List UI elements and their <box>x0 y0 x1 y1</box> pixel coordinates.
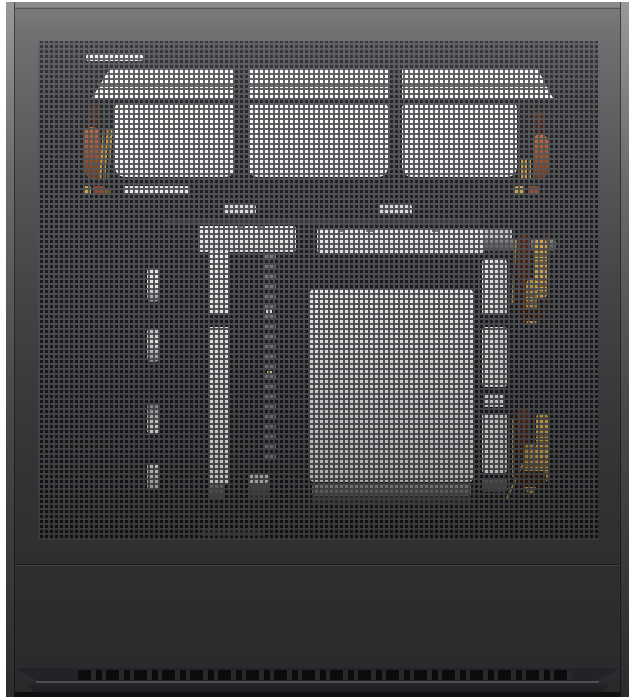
frame-column-foot <box>209 485 224 499</box>
cable-strap-1 <box>482 258 507 315</box>
grommet-slot-4 <box>147 463 159 490</box>
cable-bit-dim <box>105 188 111 195</box>
connector-block-body <box>248 483 268 500</box>
psu-backplate-shadow-faint <box>312 496 471 504</box>
cable-blob-low <box>516 471 546 487</box>
case-top-edge-highlight <box>6 2 629 7</box>
cable-bit-gold <box>515 186 524 195</box>
pc-case-body <box>6 2 629 697</box>
mesh-panel-window <box>38 41 598 540</box>
frame-bar-tail <box>484 228 512 240</box>
case-right-edge <box>620 2 629 697</box>
vent-segment <box>123 186 181 194</box>
grommet-slot-1 <box>147 268 159 302</box>
faint-label-marks <box>201 529 265 536</box>
fan-center-shroud <box>248 68 388 98</box>
fan-right-frame <box>402 103 517 177</box>
mount-tab-right <box>378 205 412 214</box>
bar-notch <box>338 228 345 232</box>
cable-strap-3 <box>482 413 507 473</box>
mount-tab-left <box>223 205 256 214</box>
psu-backplate-shadow <box>312 485 471 496</box>
base-ridge-highlight <box>36 681 599 683</box>
psu-backplate <box>310 289 473 482</box>
cable-strand-thin <box>512 419 514 477</box>
product-photo-stage <box>0 0 635 700</box>
panel-seam <box>14 565 621 566</box>
grommet-slot-2 <box>147 328 159 362</box>
connector-glint <box>266 309 272 313</box>
bar-notch <box>432 228 439 232</box>
cable-bit-orange <box>528 186 538 195</box>
strap-foot <box>482 478 507 492</box>
fan-left-shroud <box>92 68 233 98</box>
interior-scene <box>38 41 598 540</box>
cable-blob-mid <box>519 309 545 321</box>
vent-segment <box>86 54 118 61</box>
bottom-vent-recess <box>14 668 621 682</box>
cable-bit-gold <box>83 186 91 195</box>
bar-notch <box>366 228 373 232</box>
bottom-vent-slots <box>78 670 572 680</box>
frame-bar-left <box>198 226 296 252</box>
strap-stitches <box>484 395 504 407</box>
fan-left-frame <box>115 103 235 177</box>
cable-gold-right-top <box>521 159 531 179</box>
fan-right-shroud <box>402 68 553 98</box>
cable-orange-right-top <box>533 134 548 179</box>
connector-glint <box>267 371 272 374</box>
cable-bit-orange <box>94 186 104 195</box>
bar-notch <box>257 226 264 230</box>
cable-gold-left <box>99 129 113 180</box>
case-base <box>24 683 611 692</box>
bar-notch <box>237 226 244 230</box>
case-base-shadow <box>14 692 621 697</box>
frame-column-lower <box>209 327 228 483</box>
bracket-shadow <box>165 218 481 224</box>
connector-strip <box>264 255 276 461</box>
connector-block-cap <box>248 473 268 483</box>
cable-strap-2 <box>482 327 507 387</box>
grommet-slot-3 <box>147 403 159 434</box>
case-left-edge <box>6 2 15 697</box>
frame-column-upper <box>209 252 228 315</box>
fan-center-frame <box>248 103 388 177</box>
case-top-seam <box>6 8 629 9</box>
frame-bar-right <box>317 228 484 253</box>
